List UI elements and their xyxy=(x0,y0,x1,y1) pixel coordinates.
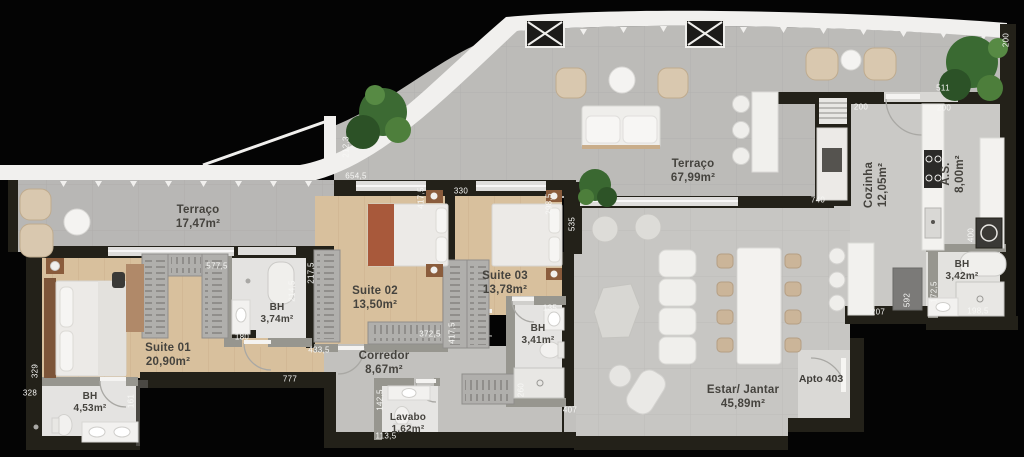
floor-plan: Terraço17,47m²Suite 0120,90m²BH4,53m²BH3… xyxy=(0,0,1024,457)
floor-plan-drawing xyxy=(0,0,1024,457)
suite03-furniture xyxy=(492,190,562,280)
